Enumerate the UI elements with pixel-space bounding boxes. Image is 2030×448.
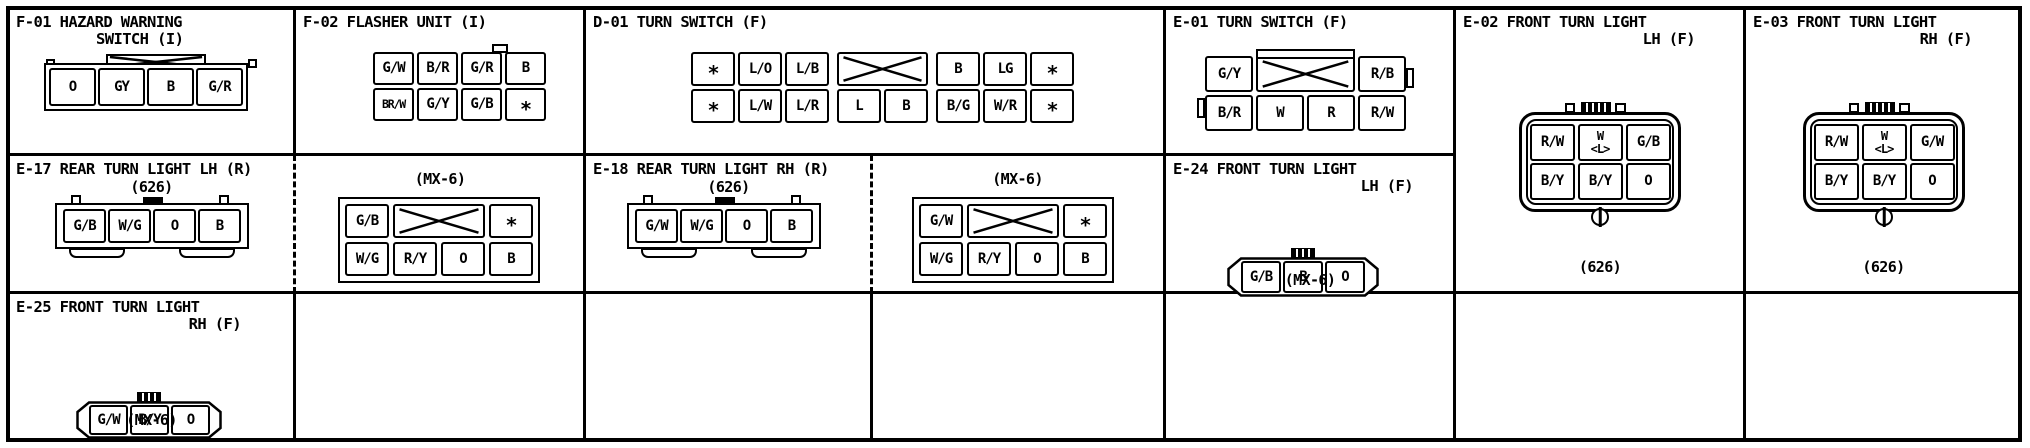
pin-row: BLG* <box>936 52 1074 86</box>
pin-cell: R/W <box>1814 124 1859 161</box>
connector-body: G/W*W/GR/YOB <box>912 197 1114 283</box>
pin-grid: LB <box>837 52 928 123</box>
pin-cell: GY <box>98 68 145 106</box>
panel-e02: E-02 FRONT TURN LIGHT LH (F) R/WW <L>G/B… <box>1457 10 1743 291</box>
pin-cell: G/B <box>345 204 389 238</box>
pin-grid: G/B*W/GR/YOB <box>345 204 533 276</box>
grid-line <box>10 153 1453 156</box>
variant-label: (626) <box>1457 258 1743 276</box>
pin-cell: G/R <box>461 52 502 85</box>
pin-cell: B <box>489 242 533 276</box>
connector-body: G/WW/GOB <box>627 203 821 249</box>
pin-grid: G/BW/GOB <box>63 209 241 243</box>
pin-grid: G/YR/BB/RWRR/W <box>1205 56 1406 131</box>
pin-cell: W/R <box>983 89 1027 123</box>
pin-row: G/W* <box>919 204 1107 238</box>
pin-cell: * <box>1030 52 1074 86</box>
pin-cell: R/W <box>1358 95 1406 131</box>
connector-e18: G/WW/GOB <box>627 203 821 249</box>
pin-cell: * <box>1063 204 1107 238</box>
lock-tab-icon <box>1256 49 1355 59</box>
pin-cell: G/W <box>635 209 678 243</box>
pin-cell: B <box>198 209 241 243</box>
pin-row: B/YB/YO <box>1530 163 1671 200</box>
variant-label: (MX-6) <box>1167 271 1453 289</box>
connector-f01: OGYBG/R <box>44 54 260 111</box>
panel-title: E-02 FRONT TURN LIGHT <box>1457 10 1743 31</box>
pin-row: *L/WL/R <box>691 89 829 123</box>
pin-cell: O <box>1910 163 1955 200</box>
pin-grid: OGYBG/R <box>49 68 243 106</box>
connector-inner-wall: R/WW <L>G/WB/YB/YO <box>1810 119 1958 205</box>
panel-f02: F-02 FLASHER UNIT (I) G/WB/RG/RBBR/WG/YG… <box>297 10 583 153</box>
grid-line <box>870 293 873 438</box>
pin-cell: R/W <box>1530 124 1575 161</box>
pin-cell: B/Y <box>1814 163 1859 200</box>
connector-f02: G/WB/RG/RBBR/WG/YG/B* <box>373 52 546 121</box>
pin-cell: B/R <box>1205 95 1253 131</box>
pin-row: G/YR/B <box>1205 56 1406 92</box>
pin-row: R/WW <L>G/W <box>1814 124 1955 161</box>
pin-cell: O <box>153 209 196 243</box>
pin-grid: R/WW <L>G/BB/YB/YO <box>1530 124 1671 200</box>
pin-row: W/GR/YOB <box>345 242 533 276</box>
pin-row: G/BW/GOB <box>63 209 241 243</box>
pin-cell: L/B <box>785 52 829 86</box>
variant-label: (MX-6) <box>10 411 293 429</box>
pin-cell: L <box>837 89 881 123</box>
pin-cell: R/Y <box>967 242 1011 276</box>
pin-cell: * <box>691 89 735 123</box>
connector-body: R/WW <L>G/BB/YB/YO <box>1519 112 1681 212</box>
corner-tab-icon <box>248 59 257 68</box>
keying-post-icon <box>1591 208 1609 226</box>
pin-cell: G/W <box>373 52 414 85</box>
grid-line <box>1453 10 1456 438</box>
panel-subtitle: LH (F) <box>1457 31 1743 48</box>
panel-subtitle: LH (F) <box>1167 178 1453 195</box>
panel-title: E-24 FRONT TURN LIGHT <box>1167 157 1453 178</box>
pin-cell: B <box>884 89 928 123</box>
pin-cell: * <box>691 52 735 86</box>
grid-line <box>10 291 2020 294</box>
connector-body: G/B*W/GR/YOB <box>338 197 540 283</box>
pin-cell: B/Y <box>1862 163 1907 200</box>
pin-row: B/GW/R* <box>936 89 1074 123</box>
connector-e17: G/BW/GOB <box>55 203 249 249</box>
panel-title: F-02 FLASHER UNIT (I) <box>297 10 583 31</box>
pin-cell: B/Y <box>1530 163 1575 200</box>
connector-inner-wall: R/WW <L>G/BB/YB/YO <box>1526 119 1674 205</box>
pin-cell: * <box>1030 89 1074 123</box>
grid-line <box>293 10 296 155</box>
pin-row: B/RWRR/W <box>1205 95 1406 131</box>
connector-body: R/WW <L>G/WB/YB/YO <box>1803 112 1965 212</box>
connector-d01: *L/OL/B*L/WL/R LB BLG*B/GW/R* <box>691 52 1074 123</box>
pin-row: G/WB/RG/RB <box>373 52 546 85</box>
panel-title: E-17 REAR TURN LIGHT LH (R) <box>10 157 293 178</box>
pin-grid: *L/OL/B*L/WL/R <box>691 52 829 123</box>
blocked-cavity-cell <box>837 52 928 86</box>
panel-subtitle: RH (F) <box>10 316 293 333</box>
pin-cell: G/Y <box>417 88 458 121</box>
pin-row: G/B* <box>345 204 533 238</box>
panel-title: D-01 TURN SWITCH (F) <box>587 10 1163 31</box>
panel-e25: E-25 FRONT TURN LIGHT RH (F) G/WB/YO (MX… <box>10 293 293 438</box>
panel-e17-mx6: (MX-6) G/B*W/GR/YOB <box>297 157 583 291</box>
connector-pinout-diagram-page: F-01 HAZARD WARNING SWITCH (I) OGYBG/R F… <box>0 0 2030 448</box>
variant-label: (626) <box>587 178 870 196</box>
pin-cell: L/O <box>738 52 782 86</box>
variant-label: (626) <box>10 178 293 196</box>
lock-tab-icon <box>492 44 508 53</box>
grid-line <box>1743 10 1746 438</box>
pin-grid: R/WW <L>G/WB/YB/YO <box>1814 124 1955 200</box>
pin-cell: W <L> <box>1578 124 1623 161</box>
grid-line <box>583 10 586 438</box>
pin-row: *L/OL/B <box>691 52 829 86</box>
pin-cell: W/G <box>108 209 151 243</box>
grid-line <box>293 293 296 438</box>
blocked-cavity-cell <box>967 204 1059 238</box>
side-tab-icon <box>1197 98 1205 118</box>
pin-cell: W/G <box>680 209 723 243</box>
mount-foot-icon <box>751 248 807 258</box>
pin-cell: B/G <box>936 89 980 123</box>
pin-row: LB <box>837 89 928 123</box>
variant-label: (MX-6) <box>872 170 1163 188</box>
pin-cell: BR/W <box>373 88 414 121</box>
panel-e17: E-17 REAR TURN LIGHT LH (R) (626) G/BW/G… <box>10 157 293 291</box>
pin-cell: * <box>489 204 533 238</box>
panel-e03: E-03 FRONT TURN LIGHT RH (F) R/WW <L>G/W… <box>1747 10 2020 291</box>
pin-cell: B/R <box>417 52 458 85</box>
connector-body: OGYBG/R <box>44 63 248 111</box>
pin-cell: W/G <box>919 242 963 276</box>
pin-cell: G/B <box>461 88 502 121</box>
pin-cell: B <box>770 209 813 243</box>
panel-d01: D-01 TURN SWITCH (F) *L/OL/B*L/WL/R LB B… <box>587 10 1163 153</box>
pin-cell: G/B <box>63 209 106 243</box>
panel-title: E-03 FRONT TURN LIGHT <box>1747 10 2020 31</box>
connector-e01: G/YR/BB/RWRR/W <box>1205 56 1406 131</box>
pin-grid: BLG*B/GW/R* <box>936 52 1074 123</box>
blocked-cavity-cell <box>1256 56 1355 92</box>
mount-foot-icon <box>69 248 125 258</box>
pin-cell: W/G <box>345 242 389 276</box>
connector-e17-mx6: G/B*W/GR/YOB <box>338 197 540 283</box>
pin-cell: L/W <box>738 89 782 123</box>
mount-foot-icon <box>641 248 697 258</box>
pin-cell: O <box>441 242 485 276</box>
panel-title: E-25 FRONT TURN LIGHT <box>10 293 293 316</box>
pin-cell: B <box>936 52 980 86</box>
panel-f01: F-01 HAZARD WARNING SWITCH (I) OGYBG/R <box>10 10 293 153</box>
panel-title: E-01 TURN SWITCH (F) <box>1167 10 1453 31</box>
pin-cell: R/B <box>1358 56 1406 92</box>
pin-row <box>837 52 928 86</box>
pin-cell: G/W <box>919 204 963 238</box>
pin-row: G/WW/GOB <box>635 209 813 243</box>
variant-label: (626) <box>1747 258 2020 276</box>
pin-cell: W <L> <box>1862 124 1907 161</box>
variant-label: (MX-6) <box>297 170 583 188</box>
connector-e02: R/WW <L>G/BB/YB/YO <box>1519 112 1681 212</box>
pin-cell: O <box>1626 163 1671 200</box>
mount-foot-icon <box>179 248 235 258</box>
dashed-divider <box>293 155 296 293</box>
connector-e03: R/WW <L>G/WB/YB/YO <box>1803 112 1965 212</box>
pin-cell: R <box>1307 95 1355 131</box>
pin-cell: B <box>1063 242 1107 276</box>
pin-row: R/WW <L>G/B <box>1530 124 1671 161</box>
panel-title: E-18 REAR TURN LIGHT RH (R) <box>587 157 870 178</box>
pin-cell: G/W <box>1910 124 1955 161</box>
pin-cell: LG <box>983 52 1027 86</box>
connector-e18-mx6: G/W*W/GR/YOB <box>912 197 1114 283</box>
pin-cell: W <box>1256 95 1304 131</box>
grid-line <box>1163 10 1166 438</box>
blocked-cavity-cell <box>393 204 485 238</box>
pin-row: B/YB/YO <box>1814 163 1955 200</box>
connector-body: G/BW/GOB <box>55 203 249 249</box>
panel-e18-mx6: (MX-6) G/W*W/GR/YOB <box>872 157 1163 291</box>
pin-cell: G/R <box>196 68 243 106</box>
pin-cell: B/Y <box>1578 163 1623 200</box>
pin-grid: G/WW/GOB <box>635 209 813 243</box>
pin-cell: O <box>1015 242 1059 276</box>
panel-e24: E-24 FRONT TURN LIGHT LH (F) G/BBO (MX-6… <box>1167 157 1453 291</box>
pin-cell: G/Y <box>1205 56 1253 92</box>
pin-cell: * <box>505 88 546 121</box>
panel-e18: E-18 REAR TURN LIGHT RH (R) (626) G/WW/G… <box>587 157 870 291</box>
panel-e01: E-01 TURN SWITCH (F) G/YR/BB/RWRR/W <box>1167 10 1453 153</box>
pin-cell: O <box>49 68 96 106</box>
panel-subtitle: SWITCH (I) <box>10 31 293 48</box>
panel-subtitle: RH (F) <box>1747 31 2020 48</box>
keying-post-icon <box>1875 208 1893 226</box>
pin-row: OGYBG/R <box>49 68 243 106</box>
pin-row: W/GR/YOB <box>919 242 1107 276</box>
side-tab-icon <box>1406 68 1414 88</box>
pin-cell: B <box>147 68 194 106</box>
pin-grid: G/WB/RG/RBBR/WG/YG/B* <box>373 52 546 121</box>
pin-cell: R/Y <box>393 242 437 276</box>
panel-title: F-01 HAZARD WARNING <box>10 10 293 31</box>
pin-cell: B <box>505 52 546 85</box>
pin-cell: O <box>725 209 768 243</box>
pin-row: BR/WG/YG/B* <box>373 88 546 121</box>
pin-cell: L/R <box>785 89 829 123</box>
pin-cell: G/B <box>1626 124 1671 161</box>
pin-grid: G/W*W/GR/YOB <box>919 204 1107 276</box>
